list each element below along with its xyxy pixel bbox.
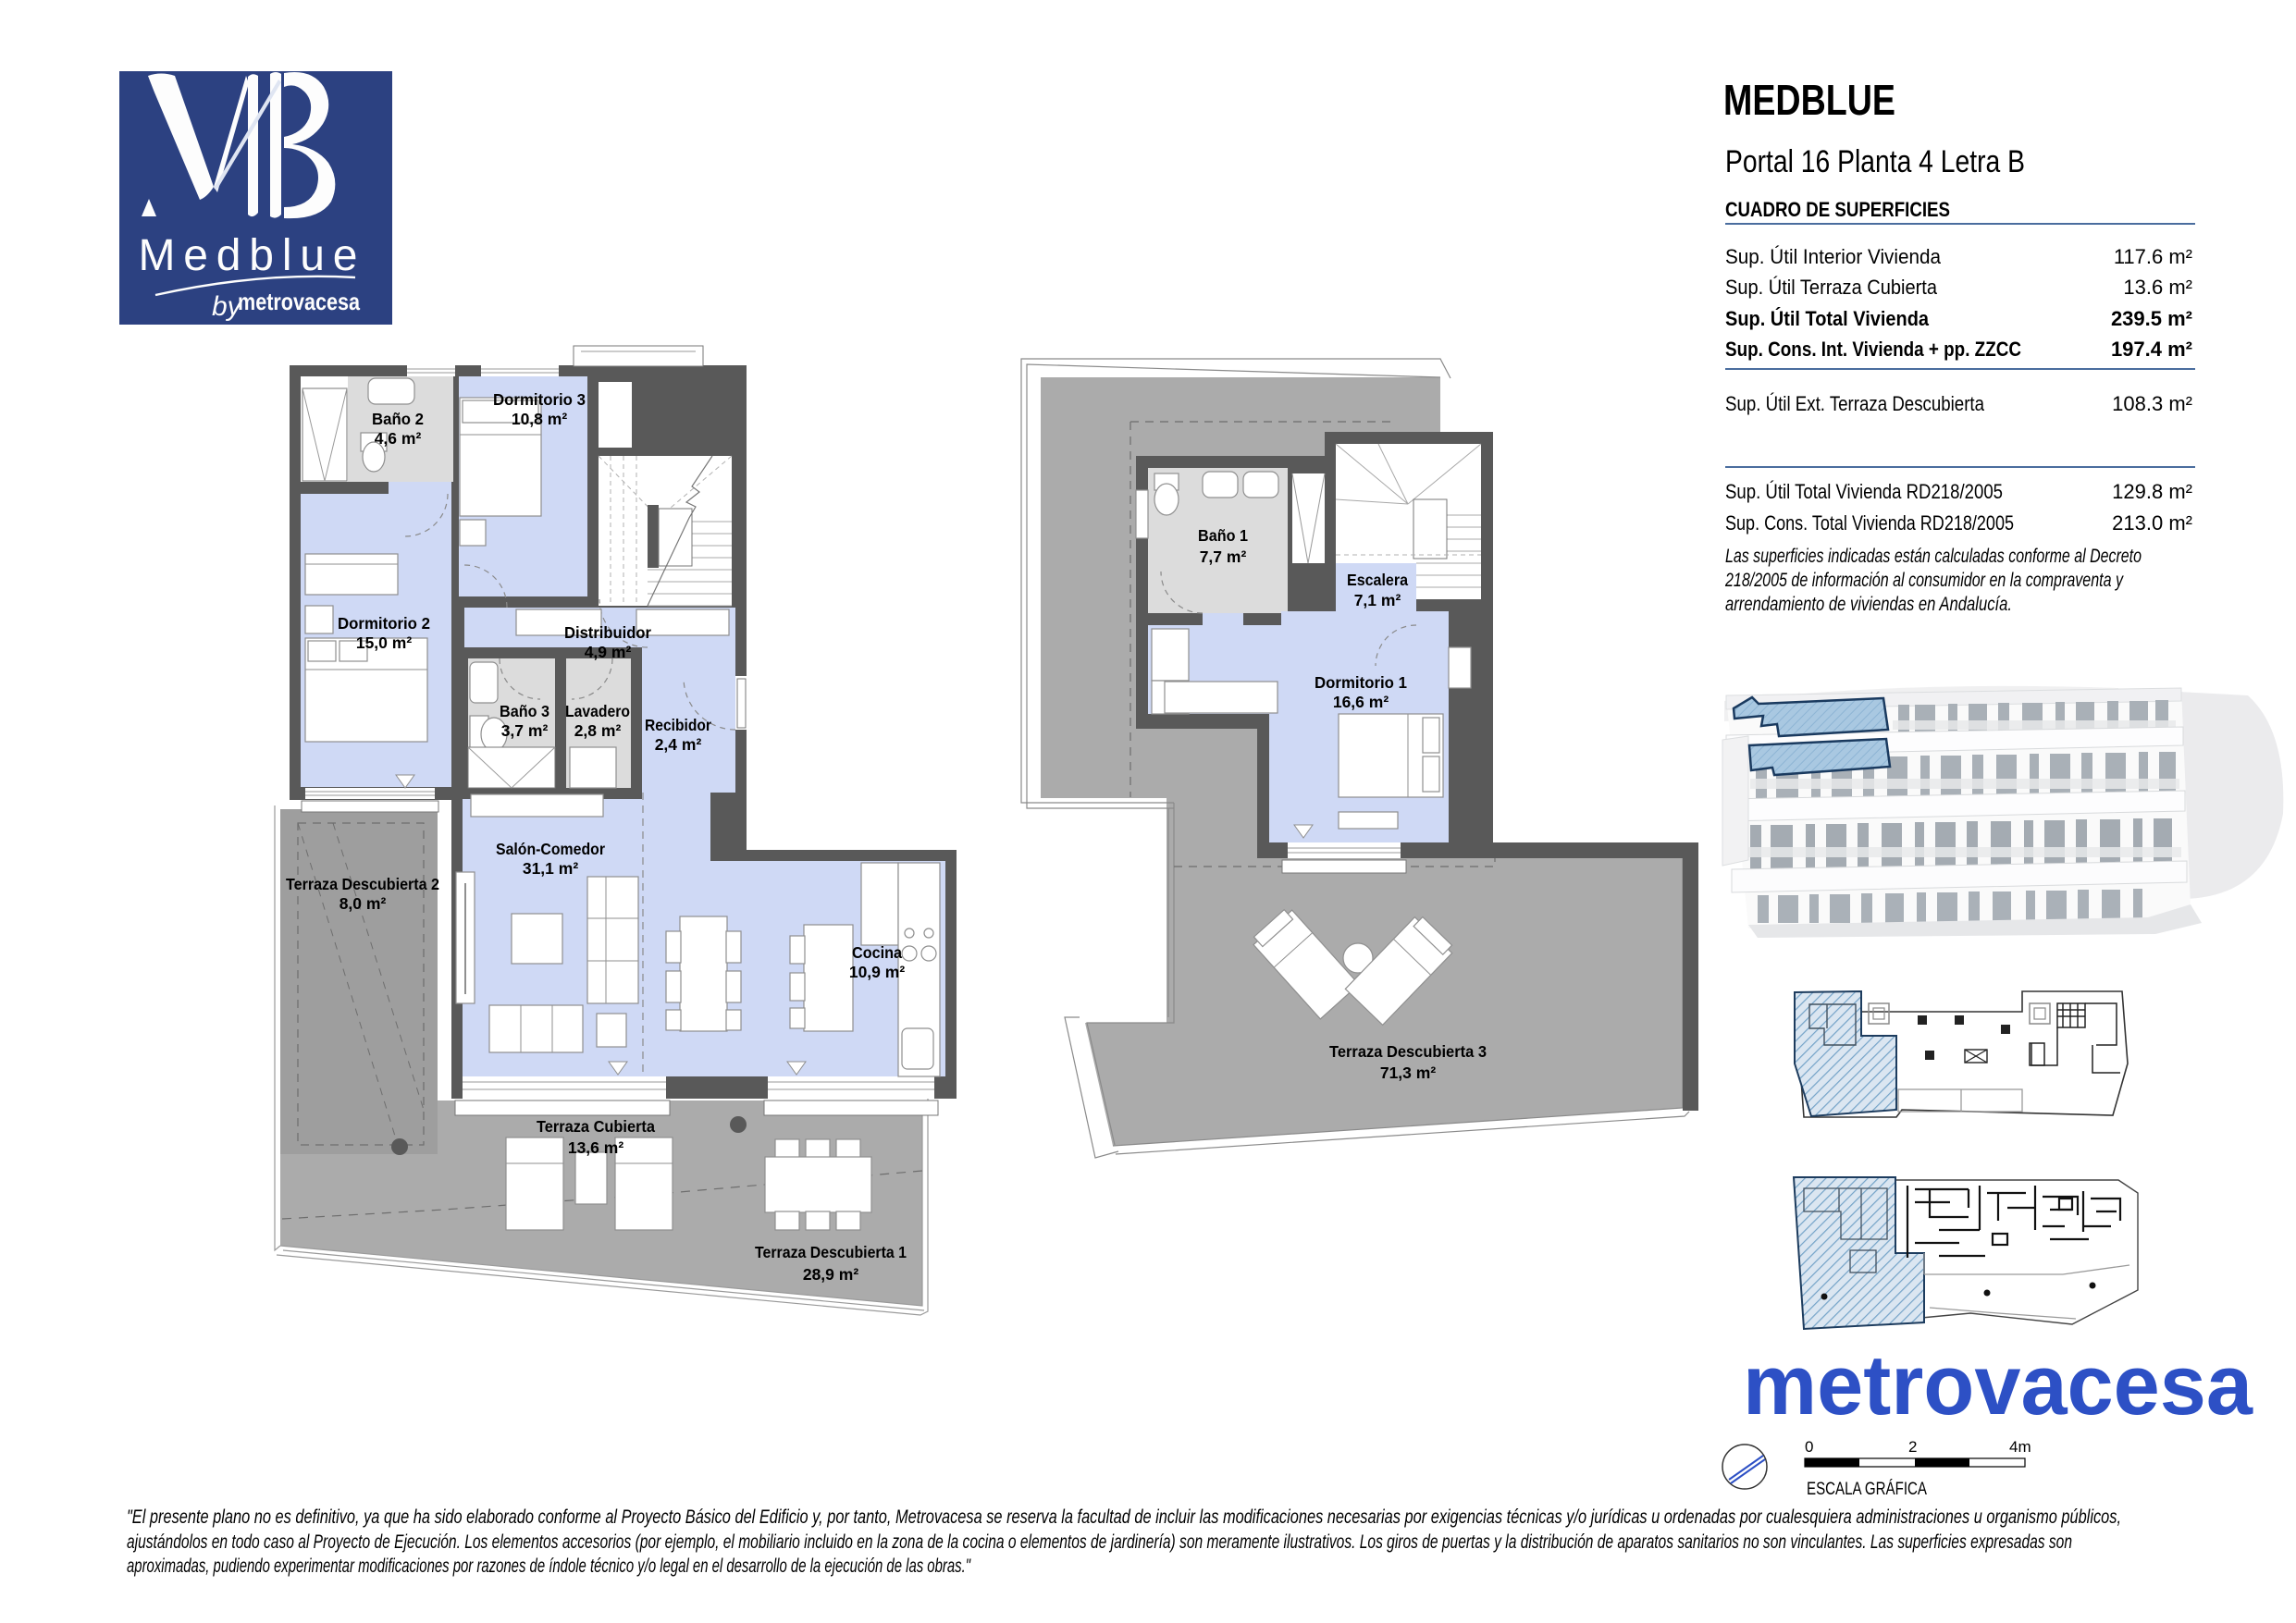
svg-text:Escalera: Escalera (1347, 571, 1408, 589)
svg-text:13,6 m²: 13,6 m² (568, 1138, 623, 1157)
svg-text:ajustándolos en todo caso al P: ajustándolos en todo caso al Proyecto de… (127, 1531, 2072, 1553)
svg-text:197.4 m²: 197.4 m² (2111, 338, 2192, 361)
svg-text:Las superficies indicadas está: Las superficies indicadas están calculad… (1725, 546, 2142, 567)
svg-text:Terraza Cubierta: Terraza Cubierta (537, 1117, 655, 1136)
svg-text:metrovacesa: metrovacesa (238, 288, 360, 315)
svg-text:CUADRO DE SUPERFICIES: CUADRO DE SUPERFICIES (1725, 198, 1950, 221)
svg-text:Sup. Útil Total Vivienda: Sup. Útil Total Vivienda (1725, 307, 1930, 330)
svg-text:28,9 m²: 28,9 m² (803, 1265, 858, 1284)
svg-text:Baño 1: Baño 1 (1198, 526, 1248, 545)
svg-text:71,3 m²: 71,3 m² (1380, 1064, 1436, 1082)
svg-text:10,9 m²: 10,9 m² (849, 963, 905, 981)
svg-text:Sup. Cons. Int. Vivienda + pp.: Sup. Cons. Int. Vivienda + pp. ZZCC (1725, 338, 2021, 361)
svg-text:218/2005 de información al con: 218/2005 de información al consumidor en… (1724, 570, 2124, 591)
svg-text:Baño 3: Baño 3 (500, 702, 549, 720)
svg-text:Sup. Cons. Total Vivienda RD21: Sup. Cons. Total Vivienda RD218/2005 (1725, 511, 2014, 535)
svg-text:Terraza Descubierta 3: Terraza Descubierta 3 (1329, 1042, 1487, 1061)
svg-text:2,4 m²: 2,4 m² (655, 735, 702, 754)
svg-text:Sup. Útil Terraza Cubierta: Sup. Útil Terraza Cubierta (1725, 276, 1938, 299)
svg-text:Terraza Descubierta 2: Terraza Descubierta 2 (286, 875, 439, 893)
svg-text:2: 2 (1908, 1438, 1917, 1456)
svg-text:Dormitorio 2: Dormitorio 2 (338, 614, 430, 633)
svg-text:Baño 2: Baño 2 (372, 410, 424, 428)
svg-text:Cocina: Cocina (852, 943, 902, 962)
svg-text:Sup. Útil Total Vivienda RD218: Sup. Útil Total Vivienda RD218/2005 (1725, 480, 2003, 503)
svg-text:Dormitorio 1: Dormitorio 1 (1315, 673, 1407, 692)
svg-text:213.0 m²: 213.0 m² (2112, 511, 2192, 535)
svg-text:Sup. Útil Interior Vivienda: Sup. Útil Interior Vivienda (1725, 245, 1942, 268)
svg-text:Lavadero: Lavadero (565, 702, 630, 720)
svg-text:Terraza Descubierta 1: Terraza Descubierta 1 (755, 1243, 907, 1261)
svg-text:"El presente plano no es defin: "El presente plano no es definitivo, ya … (127, 1506, 2121, 1528)
svg-text:4,6 m²: 4,6 m² (375, 429, 422, 448)
svg-text:Recibidor: Recibidor (645, 716, 711, 734)
svg-text:Dormitorio 3: Dormitorio 3 (493, 390, 586, 409)
svg-text:117.6 m²: 117.6 m² (2114, 245, 2192, 268)
svg-text:13.6 m²: 13.6 m² (2123, 276, 2192, 299)
svg-text:108.3 m²: 108.3 m² (2112, 392, 2192, 415)
svg-text:metrovacesa: metrovacesa (1743, 1338, 2253, 1432)
svg-text:31,1 m²: 31,1 m² (523, 859, 578, 878)
svg-text:Portal 16 Planta 4 Letra B: Portal 16 Planta 4 Letra B (1725, 144, 2025, 179)
svg-text:7,7 m²: 7,7 m² (1200, 547, 1247, 566)
svg-text:MEDBLUE: MEDBLUE (1723, 76, 1895, 124)
svg-text:2,8 m²: 2,8 m² (574, 721, 622, 740)
svg-text:Salón-Comedor: Salón-Comedor (496, 840, 605, 858)
svg-text:8,0 m²: 8,0 m² (339, 894, 387, 913)
svg-text:239.5 m²: 239.5 m² (2111, 307, 2192, 330)
svg-text:129.8 m²: 129.8 m² (2112, 480, 2192, 503)
svg-text:Distribuidor: Distribuidor (564, 623, 651, 642)
svg-text:0: 0 (1805, 1438, 1813, 1456)
svg-text:ESCALA GRÁFICA: ESCALA GRÁFICA (1807, 1480, 1927, 1499)
svg-text:4m: 4m (2009, 1438, 2031, 1456)
svg-text:arrendamiento de viviendas en: arrendamiento de viviendas en Andalucía. (1725, 594, 2012, 615)
svg-text:16,6 m²: 16,6 m² (1333, 693, 1389, 711)
svg-text:7,1 m²: 7,1 m² (1354, 591, 1401, 609)
svg-text:3,7 m²: 3,7 m² (501, 721, 549, 740)
svg-text:Sup. Útil Ext. Terraza Descubi: Sup. Útil Ext. Terraza Descubierta (1725, 392, 1985, 415)
svg-text:aproximadas, pudiendo experime: aproximadas, pudiendo experimentar modif… (127, 1555, 971, 1577)
svg-text:4,9 m²: 4,9 m² (585, 643, 632, 661)
svg-text:10,8 m²: 10,8 m² (512, 410, 567, 428)
svg-text:15,0 m²: 15,0 m² (356, 633, 412, 652)
